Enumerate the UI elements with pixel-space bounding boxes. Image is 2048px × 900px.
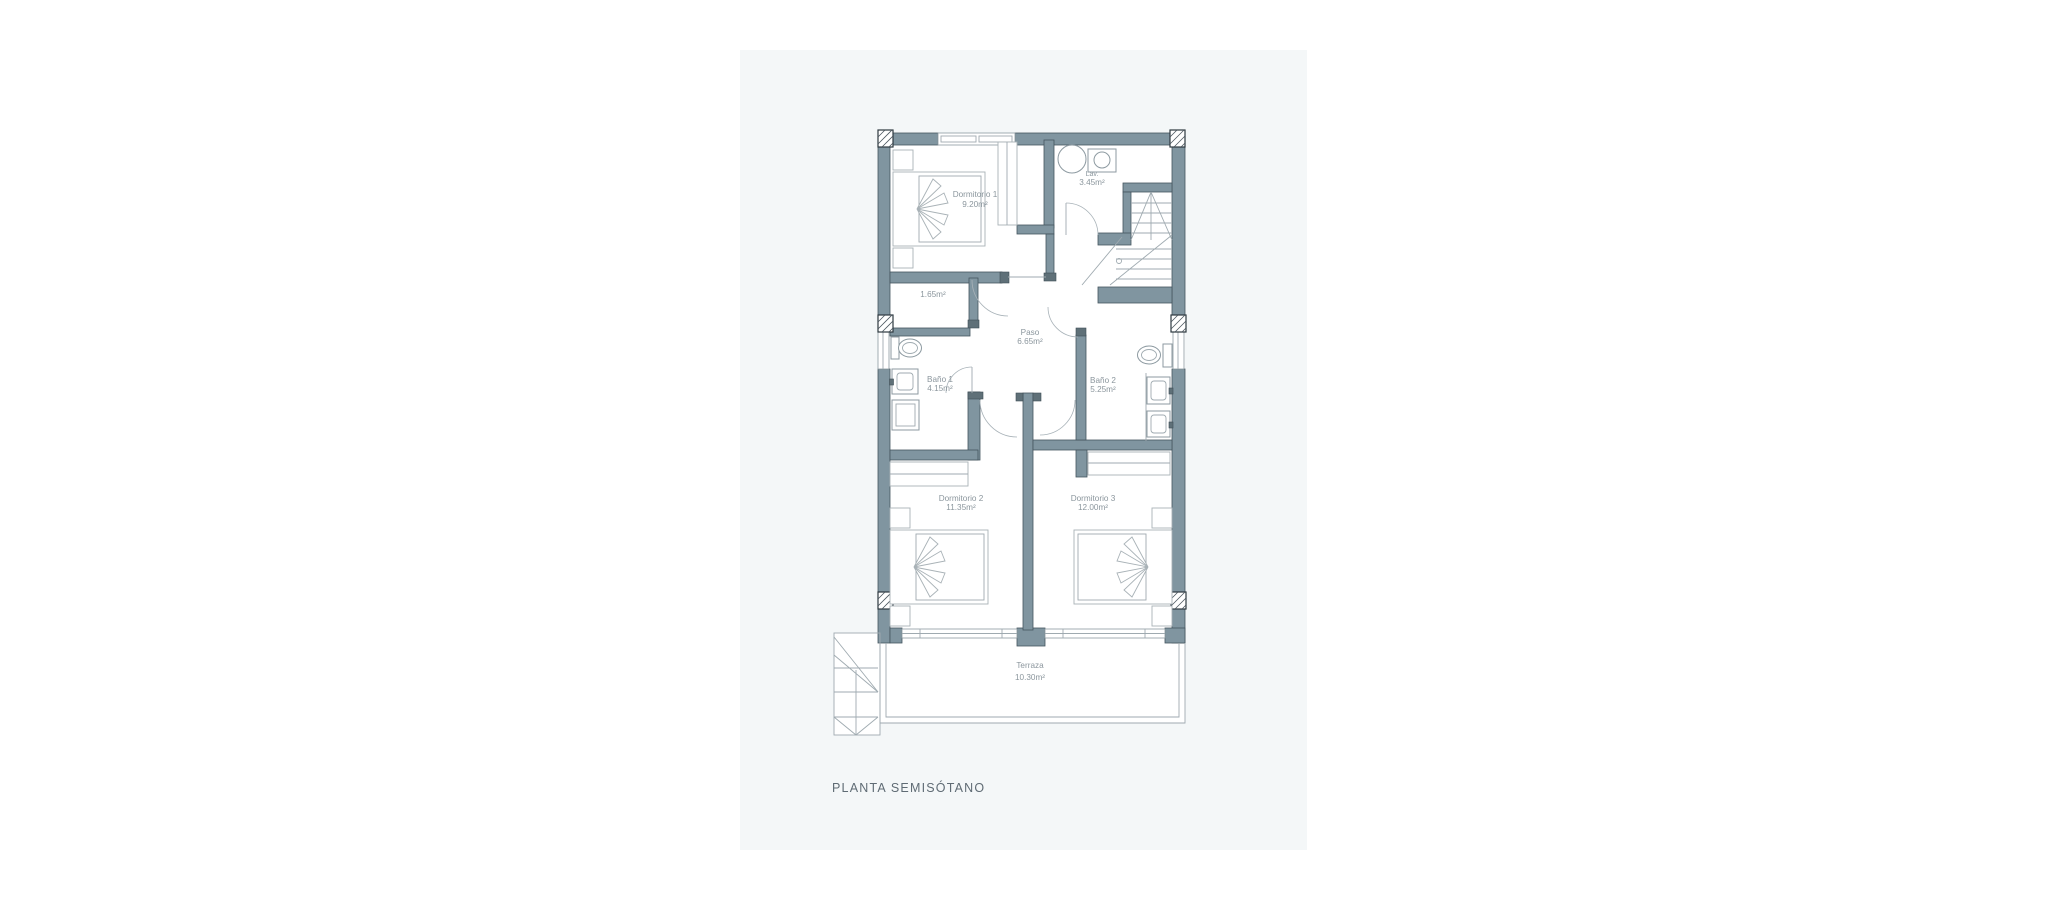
floor-plan-panel: Dormitorio 1 9.20m² Lav. 3.45m² 1.65m² P… bbox=[740, 50, 1307, 850]
pillar-icon bbox=[1171, 592, 1186, 609]
window-right bbox=[1173, 331, 1184, 369]
wall-lav-cap bbox=[1017, 225, 1054, 234]
wall-hall-upper bbox=[1046, 234, 1054, 274]
room-label-dormitorio-3-area: 12.00m² bbox=[1078, 503, 1108, 512]
stair-wall-top bbox=[1123, 183, 1172, 192]
room-label-armario-area: 1.65m² bbox=[920, 290, 946, 299]
door-hinge-plate bbox=[1016, 393, 1023, 401]
faucet-icon bbox=[1169, 388, 1173, 394]
pillar-icon bbox=[1170, 130, 1185, 147]
wall-bottom-corner-right bbox=[1165, 628, 1185, 643]
wall-paso-bano1-upper bbox=[969, 278, 978, 327]
nightstand bbox=[890, 508, 910, 528]
toilet-icon bbox=[1138, 346, 1161, 364]
closet-icon bbox=[998, 142, 1017, 225]
nightstand bbox=[890, 606, 910, 626]
wall-bano2-stair bbox=[1098, 287, 1172, 303]
wall-left-upper bbox=[878, 147, 890, 315]
room-label-paso-name: Paso bbox=[1021, 328, 1040, 337]
toilet-tank-icon bbox=[891, 337, 899, 359]
room-label-dormitorio-1-area: 9.20m² bbox=[962, 200, 988, 209]
room-label-dormitorio-2-area: 11.35m² bbox=[946, 503, 976, 512]
wall-central bbox=[1023, 393, 1033, 630]
room-label-dormitorio-1-name: Dormitorio 1 bbox=[953, 190, 998, 199]
nightstand bbox=[1152, 508, 1172, 528]
wall-dorm1-lav bbox=[1044, 140, 1054, 228]
wall-dorm3-top bbox=[1033, 440, 1172, 450]
outside-stair-floor bbox=[834, 633, 880, 735]
room-label-dormitorio-2-name: Dormitorio 2 bbox=[939, 494, 984, 503]
room-label-terraza-name: Terraza bbox=[1016, 661, 1044, 670]
wall-dorm3-stub bbox=[1076, 450, 1087, 477]
wall-armario-bano1 bbox=[890, 328, 970, 336]
wall-right-upper bbox=[1172, 147, 1185, 315]
washer-door-icon bbox=[1094, 152, 1110, 168]
pillar-icon bbox=[1171, 315, 1186, 332]
stair-wall-stub bbox=[1098, 233, 1131, 245]
wall-top-right bbox=[1015, 133, 1170, 145]
wall-nub bbox=[1076, 328, 1086, 336]
room-label-bano1-area: 4.15m² bbox=[927, 384, 953, 393]
room-label-dormitorio-3-name: Dormitorio 3 bbox=[1071, 494, 1116, 503]
washer-drum-icon bbox=[1058, 145, 1086, 173]
window-left bbox=[878, 331, 889, 369]
nightstand bbox=[1152, 606, 1172, 626]
toilet-icon bbox=[899, 339, 922, 357]
room-label-terraza-area: 10.30m² bbox=[1015, 673, 1045, 682]
wall-bottom-pier bbox=[1017, 628, 1045, 646]
bathroom1-fixtures bbox=[890, 337, 922, 430]
nightstand bbox=[893, 150, 913, 170]
toilet-tank-icon bbox=[1163, 344, 1172, 367]
closet-icon bbox=[1088, 452, 1170, 475]
room-label-bano2-area: 5.25m² bbox=[1090, 385, 1116, 394]
door-hinge-plate bbox=[1033, 393, 1041, 401]
faucet-icon bbox=[890, 379, 894, 385]
wall-top-left bbox=[893, 133, 938, 145]
room-label-bano1-name: Baño 1 bbox=[927, 375, 953, 384]
plan-caption: PLANTA SEMISÓTANO bbox=[832, 781, 985, 795]
bed-frame bbox=[1074, 530, 1172, 604]
wall-nub bbox=[1000, 272, 1009, 283]
room-label-paso-area: 6.65m² bbox=[1017, 337, 1043, 346]
wall-dorm2-top bbox=[890, 450, 978, 460]
wall-bottom-corner-left bbox=[890, 628, 902, 643]
nightstand bbox=[893, 248, 913, 268]
room-label-bano2-name: Baño 2 bbox=[1090, 376, 1116, 385]
wall-nub bbox=[968, 320, 979, 328]
wall-dorm1-bottom bbox=[890, 272, 1002, 283]
room-label-lavadero-area: 3.45m² bbox=[1079, 178, 1105, 187]
page: { "caption": { "text": "PLANTA SEMISÓTAN… bbox=[0, 0, 2048, 900]
floor-plan: Dormitorio 1 9.20m² Lav. 3.45m² 1.65m² P… bbox=[820, 125, 1200, 745]
pillar-icon bbox=[878, 130, 893, 147]
faucet-icon bbox=[1169, 422, 1173, 428]
bed-frame bbox=[890, 530, 988, 604]
bed-frame bbox=[893, 172, 985, 246]
door-hinge-plate bbox=[968, 392, 983, 399]
room-label-lavadero-name: Lav. bbox=[1086, 171, 1099, 178]
terrace-floor bbox=[880, 643, 1185, 723]
pillar-icon bbox=[878, 315, 893, 332]
wall-right-mid bbox=[1172, 369, 1185, 592]
wall-bano2-left bbox=[1076, 335, 1086, 440]
wall-left-mid bbox=[878, 369, 890, 592]
